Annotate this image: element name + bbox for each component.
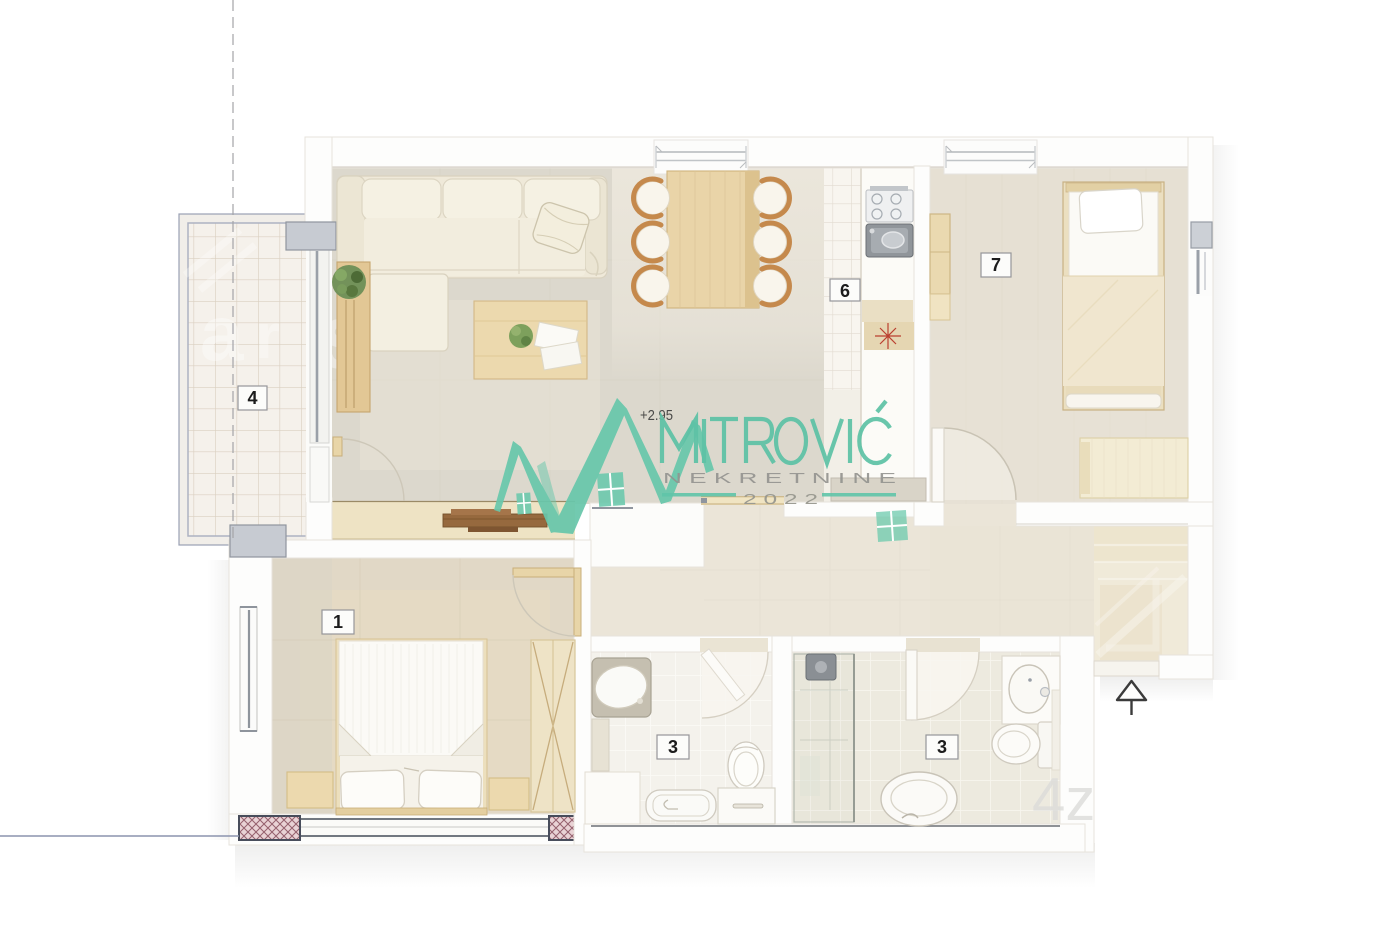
svg-text:+2.95: +2.95 <box>640 407 673 424</box>
svg-text:N E K R E T N I N E: N E K R E T N I N E <box>663 471 897 487</box>
svg-text:1: 1 <box>333 612 343 632</box>
svg-text:3: 3 <box>937 737 947 757</box>
svg-text:4: 4 <box>247 388 257 408</box>
svg-text:7: 7 <box>991 255 1001 275</box>
svg-text:6: 6 <box>840 281 850 301</box>
svg-text:a: a <box>200 289 244 377</box>
svg-text:3: 3 <box>668 737 678 757</box>
svg-text:4z: 4z <box>1032 766 1095 833</box>
svg-text:r: r <box>255 300 280 372</box>
svg-text:2 0 2 2: 2 0 2 2 <box>743 491 818 508</box>
